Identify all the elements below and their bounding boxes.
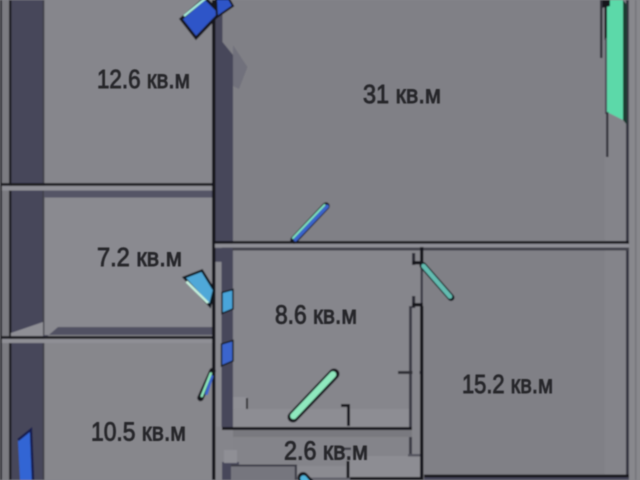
svg-text:12.6 кв.м: 12.6 кв.м [97, 64, 190, 94]
svg-text:10.5 кв.м: 10.5 кв.м [91, 417, 186, 447]
svg-text:15.2 кв.м: 15.2 кв.м [462, 369, 553, 399]
svg-text:31 кв.м: 31 кв.м [363, 79, 441, 109]
svg-text:2.6 кв.м: 2.6 кв.м [284, 436, 368, 466]
svg-text:7.2 кв.м: 7.2 кв.м [97, 242, 182, 272]
svg-text:8.6 кв.м: 8.6 кв.м [275, 300, 357, 330]
